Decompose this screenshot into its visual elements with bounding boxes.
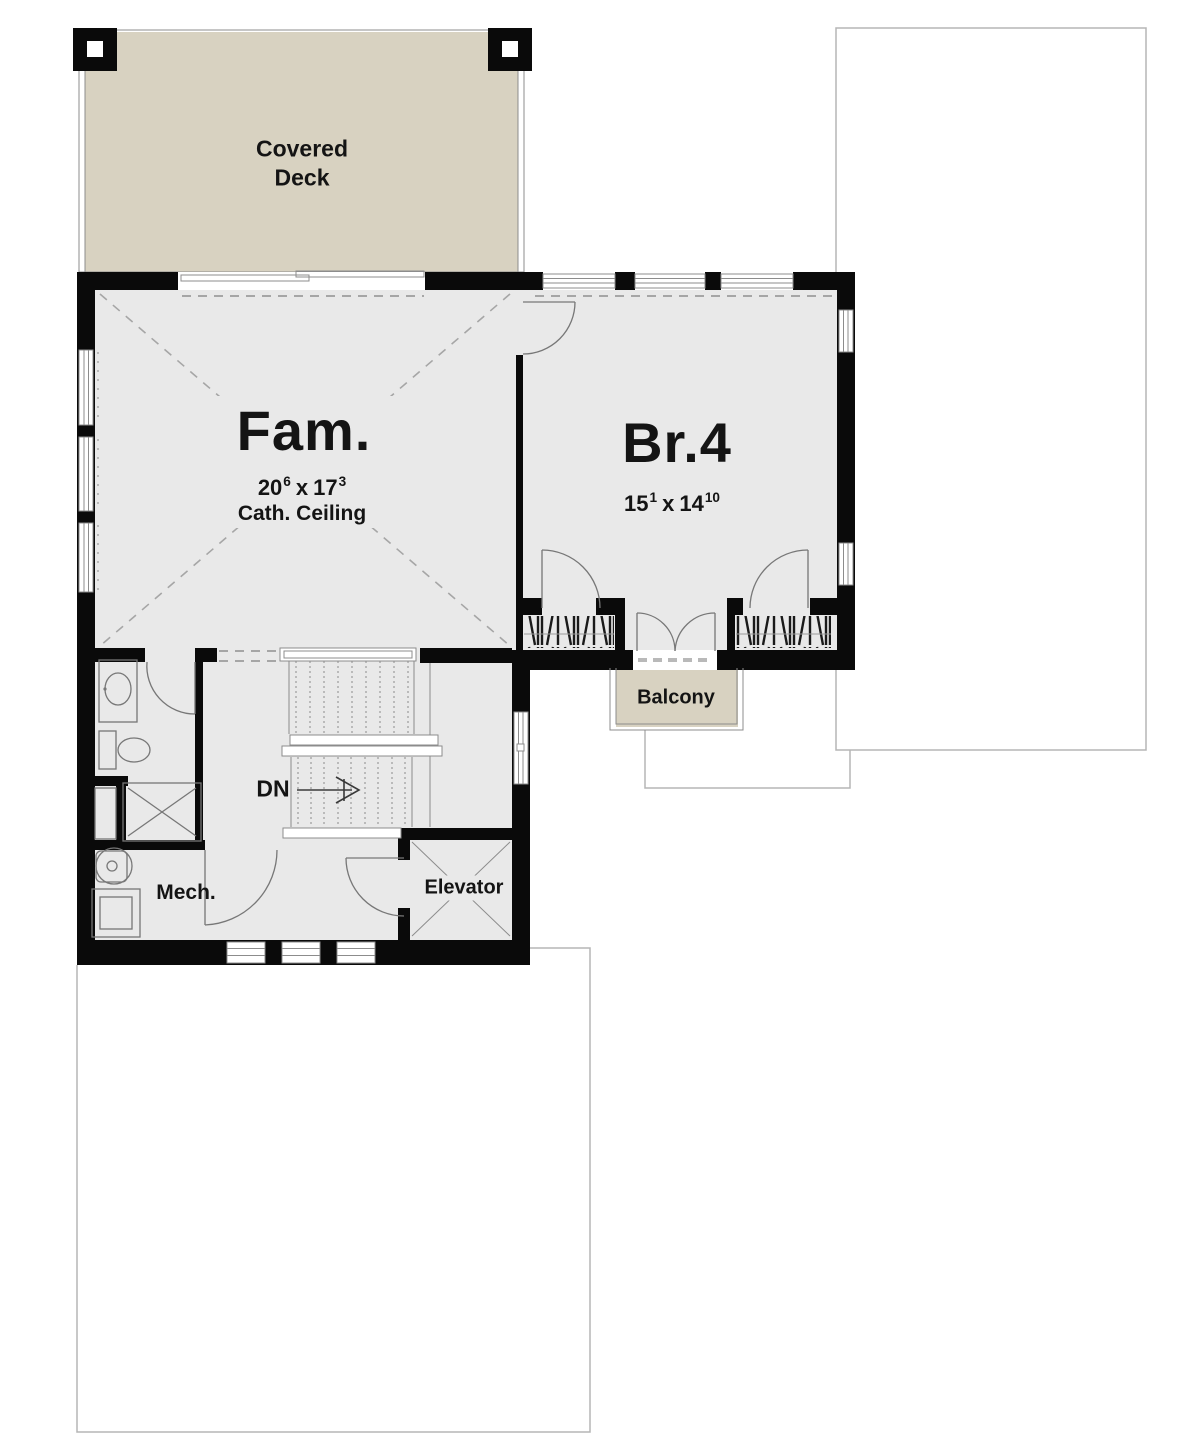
bedroom4-label: Br.4 <box>622 415 732 471</box>
balcony-label: Balcony <box>637 686 715 711</box>
family-room-ceiling-note: Cath. Ceiling <box>238 501 366 527</box>
sliding-door <box>178 271 425 290</box>
covered-deck-label: Covered Deck <box>256 134 348 192</box>
family-room-dimensions: 206x173 <box>258 475 346 499</box>
floor-plan: Covered Deck Fam. 206x173 Cath. Ceiling … <box>0 0 1200 1441</box>
elevator-label: Elevator <box>421 876 508 901</box>
mechanical-room-label: Mech. <box>156 880 216 906</box>
floor-plan-drawing <box>0 0 1200 1441</box>
interior-floor <box>95 290 837 940</box>
family-room-label: Fam. <box>237 403 372 459</box>
stairs-down-label: DN <box>256 775 289 804</box>
bedroom4-dimensions: 151x1410 <box>624 491 720 515</box>
